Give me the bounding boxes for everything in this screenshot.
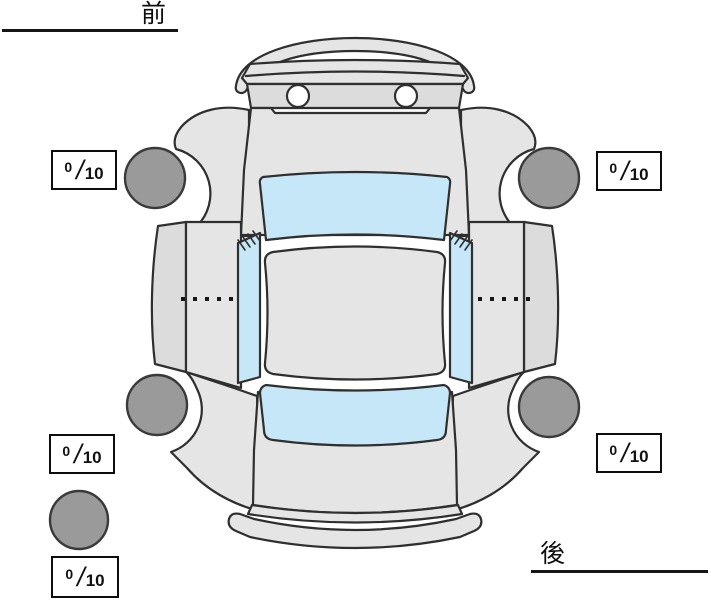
score-max: 10 <box>630 165 649 185</box>
score-max: 10 <box>83 448 102 468</box>
tire-rear-right <box>519 377 579 437</box>
score-value: 0 <box>609 442 617 458</box>
rear-window <box>260 385 450 446</box>
tire-rear-left <box>127 375 187 435</box>
front-label: 前 <box>141 1 167 29</box>
score-box-rear-left: 0 / 10 <box>49 434 115 474</box>
score-box-front-right: 0 / 10 <box>596 151 662 191</box>
score-slash: / <box>74 443 82 466</box>
score-box-front-left: 0 / 10 <box>51 150 117 190</box>
score-box-spare: 0 / 10 <box>51 556 119 598</box>
rear-label: 後 <box>540 541 566 569</box>
strut-circle-right <box>395 85 417 107</box>
roof <box>265 247 445 380</box>
spare-tire <box>50 491 108 549</box>
score-max: 10 <box>85 164 104 184</box>
score-slash: / <box>621 160 629 183</box>
side-window-right <box>450 233 472 383</box>
score-box-rear-right: 0 / 10 <box>596 433 662 473</box>
vehicle-condition-diagram: 前 後 0 / 10 0 / 10 0 / 10 0 / 10 0 / 10 <box>0 0 711 600</box>
door-panel-right <box>469 222 524 388</box>
cowl-panel <box>247 84 463 108</box>
front-fender-left <box>175 108 249 236</box>
front-underline <box>2 29 178 32</box>
door-panel-left <box>186 222 241 388</box>
score-max: 10 <box>630 447 649 467</box>
tire-front-right <box>519 148 579 208</box>
score-value: 0 <box>64 159 72 175</box>
score-slash: / <box>77 566 85 589</box>
score-value: 0 <box>609 160 617 176</box>
car-top-view-canvas <box>0 0 711 600</box>
side-window-left <box>238 233 260 383</box>
score-value: 0 <box>62 443 70 459</box>
score-slash: / <box>621 442 629 465</box>
score-max: 10 <box>86 571 105 591</box>
score-value: 0 <box>65 566 73 582</box>
windshield <box>260 172 450 240</box>
strut-circle-left <box>287 85 309 107</box>
rocker-panel-left <box>152 222 186 372</box>
tire-front-left <box>125 148 185 208</box>
rear-underline <box>531 570 708 573</box>
score-slash: / <box>76 159 84 182</box>
